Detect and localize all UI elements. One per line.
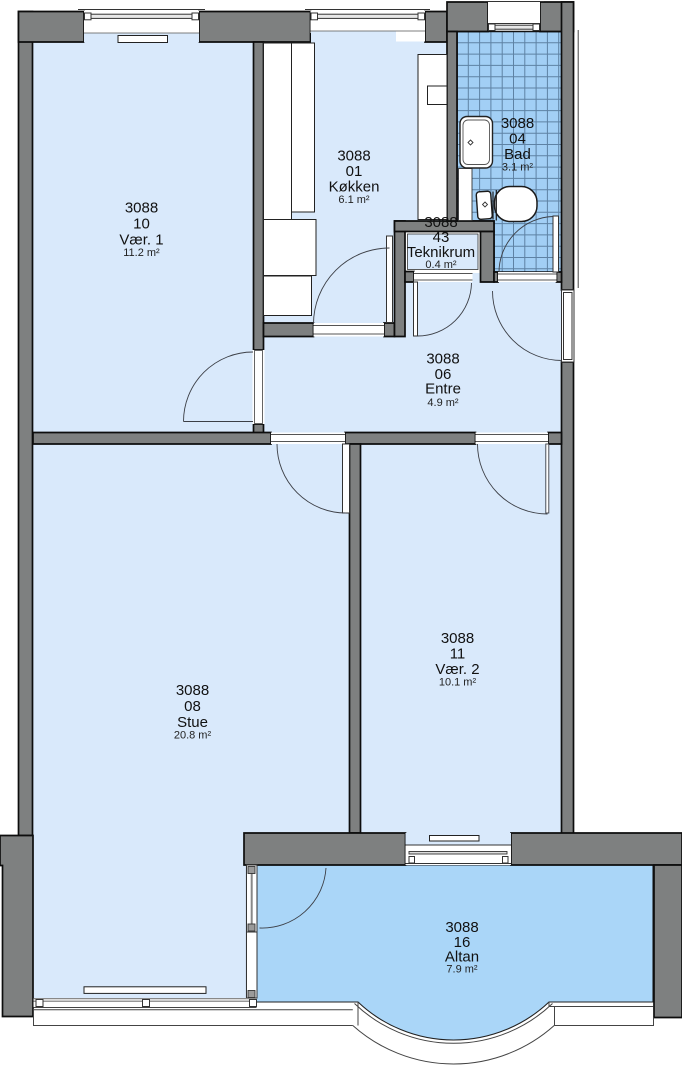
svg-text:10.1 m²: 10.1 m² [439,677,477,689]
svg-text:Vær. 2: Vær. 2 [435,661,479,678]
svg-text:3.1 m²: 3.1 m² [502,162,534,174]
svg-text:3088: 3088 [501,115,534,132]
svg-text:7.9 m²: 7.9 m² [446,964,478,976]
svg-text:10: 10 [133,216,150,233]
svg-text:Bad: Bad [504,146,531,163]
svg-text:Køkken: Køkken [329,179,380,196]
svg-text:3088: 3088 [441,630,474,647]
svg-text:04: 04 [509,131,526,148]
svg-text:3088: 3088 [176,682,209,699]
svg-text:3088: 3088 [125,200,158,217]
svg-text:Stue: Stue [177,714,208,731]
svg-text:3088: 3088 [337,148,370,165]
svg-text:6.1 m²: 6.1 m² [338,194,370,206]
svg-text:Vær. 1: Vær. 1 [119,232,163,249]
svg-text:4.9 m²: 4.9 m² [427,397,459,409]
svg-text:3088: 3088 [426,351,459,368]
svg-text:11: 11 [450,646,466,663]
svg-text:11.2 m²: 11.2 m² [123,247,160,259]
svg-text:0.4 m²: 0.4 m² [425,259,457,271]
svg-text:01: 01 [346,163,363,180]
svg-text:Entre: Entre [425,381,461,398]
svg-text:20.8 m²: 20.8 m² [174,730,212,742]
svg-text:08: 08 [184,698,201,715]
